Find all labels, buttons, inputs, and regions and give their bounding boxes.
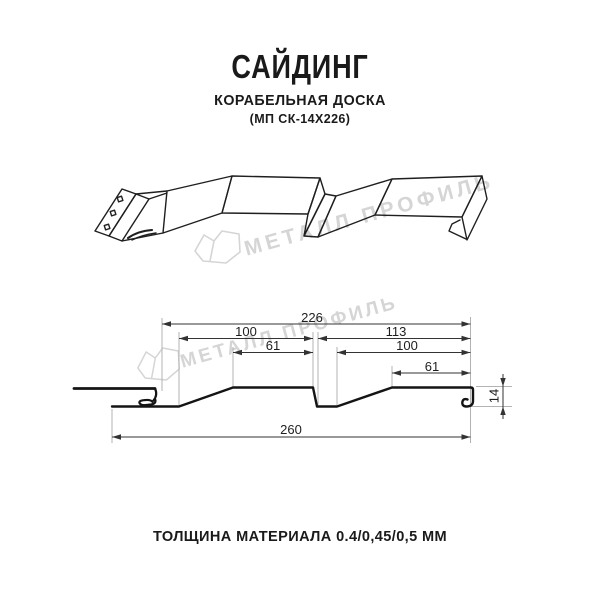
cross-section-profile — [74, 388, 473, 407]
groove-bottom — [304, 194, 336, 237]
perspective-view — [95, 176, 487, 241]
flat-face-1 — [222, 176, 320, 214]
slope-face-2 — [318, 179, 392, 237]
cross-section-dimension-lines — [112, 324, 503, 437]
dim-label-226: 226 — [301, 311, 323, 324]
flat-face-2 — [375, 176, 482, 217]
dim-label-113: 113 — [386, 325, 407, 338]
dim-label-100-right: 100 — [396, 339, 418, 352]
dim-label-260: 260 — [280, 423, 302, 436]
dim-label-14: 14 — [488, 389, 501, 403]
dim-label-61-right: 61 — [425, 360, 439, 373]
linework-layer — [0, 0, 600, 600]
dimension-arrows — [112, 321, 506, 439]
edge-hook — [462, 176, 487, 240]
dim-label-100-left: 100 — [235, 325, 257, 338]
cross-section-extension-lines — [112, 317, 512, 443]
dim-label-61-left: 61 — [266, 339, 280, 352]
material-thickness-note: ТОЛЩИНА МАТЕРИАЛА 0.4/0,45/0,5 ММ — [9, 528, 591, 545]
diagram-canvas: САЙДИНГ КОРАБЕЛЬНАЯ ДОСКА (МП СК-14Х226)… — [0, 0, 600, 600]
slope-face-1 — [163, 176, 232, 233]
